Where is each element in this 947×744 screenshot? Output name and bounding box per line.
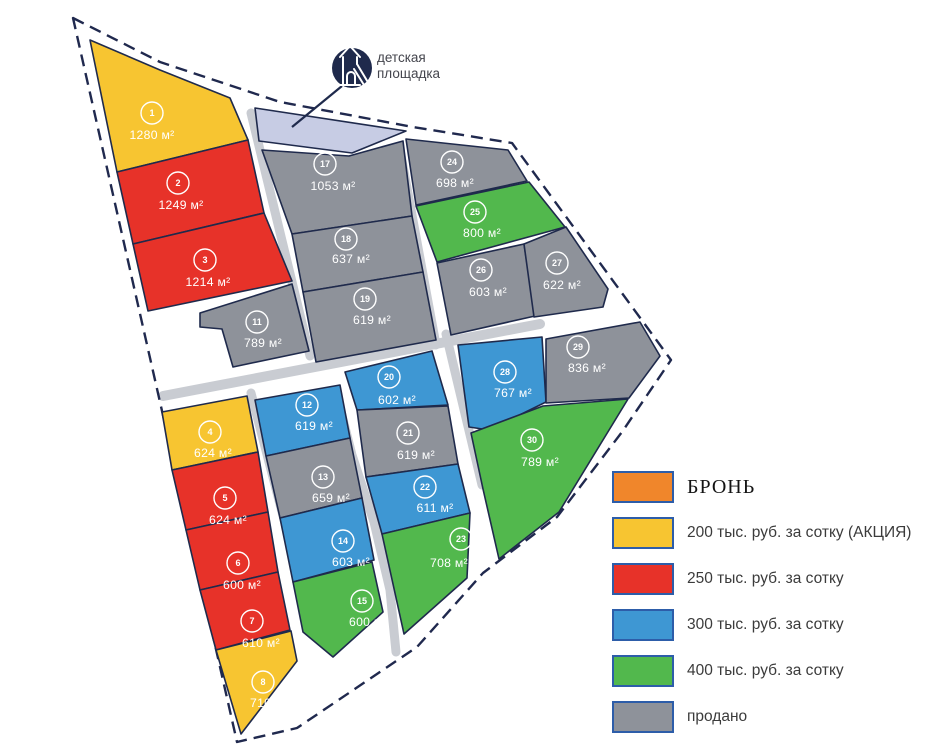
plot-area: 789 м² [521,455,559,469]
plot-number: 5 [222,493,227,503]
plot-number: 28 [500,367,510,377]
legend-swatch-reserved [612,471,674,503]
plot-number: 23 [456,534,466,544]
plot-number: 3 [202,255,207,265]
plot-number: 2 [175,178,180,188]
legend-label: БРОНЬ [687,476,755,499]
plot-number: 25 [470,207,480,217]
plot-number: 14 [338,536,348,546]
plot-area: 1053 м² [310,179,355,193]
plot-area: 659 м² [312,491,350,505]
legend-item-price300: 300 тыс. руб. за сотку [612,610,911,640]
plot-area: 600 м² [223,578,261,592]
legend-swatch-price250 [612,563,674,595]
plot-area: 698 м² [436,176,474,190]
plot-number: 21 [403,428,413,438]
plot-area: 610 м² [242,636,280,650]
legend-label: продано [687,708,747,726]
plot-number: 11 [252,317,262,327]
plot-number: 6 [235,558,240,568]
plot-number: 15 [357,596,367,606]
plot-area: 1249 м² [158,198,203,212]
plot-area: 619 м² [397,448,435,462]
plot-area: 602 м² [378,393,416,407]
legend-swatch-sold [612,701,674,733]
land-plot-scheme: 11280 м²21249 м²31214 м²4624 м²5624 м²66… [0,0,947,744]
plot-area: 603 м² [332,555,370,569]
plot-27[interactable] [524,227,608,317]
legend-label: 400 тыс. руб. за сотку [687,662,844,680]
plot-area: 800 м² [463,226,501,240]
plot-area: 624 м² [209,513,247,527]
plot-area: 611 м² [416,501,453,515]
plots-layer [90,40,660,734]
plot-area: 619 м² [295,419,333,433]
legend-item-reserved: БРОНЬ [612,472,911,502]
legend-label: 250 тыс. руб. за сотку [687,570,844,588]
plot-area: 603 м² [469,285,507,299]
legend-item-sold: продано [612,702,911,732]
legend-label: 300 тыс. руб. за сотку [687,616,844,634]
plot-number: 18 [341,234,351,244]
plot-number: 13 [318,472,328,482]
legend-swatch-price300 [612,609,674,641]
plot-number: 30 [527,435,537,445]
legend-swatch-price400 [612,655,674,687]
plot-number: 8 [260,677,265,687]
playground-marker: детскаяплощадка [292,46,441,127]
plot-area: 624 м² [194,446,232,460]
plot-number: 19 [360,294,370,304]
plot-number: 17 [320,159,330,169]
plot-area: 619 м² [353,313,391,327]
plot-number: 27 [552,258,562,268]
plot-number: 1 [149,108,154,118]
legend: БРОНЬ200 тыс. руб. за сотку (АКЦИЯ)250 т… [612,472,911,732]
plot-number: 26 [476,265,486,275]
plot-number: 12 [302,400,312,410]
plot-area: 600 м² [349,615,387,629]
plot-area: 767 м² [494,386,532,400]
plot-area: 637 м² [332,252,370,266]
legend-item-promo200: 200 тыс. руб. за сотку (АКЦИЯ) [612,518,911,548]
plot-number: 4 [207,427,212,437]
playground-label-line2: площадка [377,66,441,81]
plot-number: 20 [384,372,394,382]
plot-area: 708 м² [430,556,468,570]
plot-area: 1214 м² [185,275,230,289]
playground-icon [332,48,372,88]
plot-number: 29 [573,342,583,352]
plot-area: 622 м² [543,278,581,292]
legend-label: 200 тыс. руб. за сотку (АКЦИЯ) [687,524,911,542]
plot-area: 836 м² [568,361,606,375]
plot-number: 22 [420,482,430,492]
playground-label-line1: детская [377,50,426,65]
legend-item-price250: 250 тыс. руб. за сотку [612,564,911,594]
legend-swatch-promo200 [612,517,674,549]
plot-area: 789 м² [244,336,282,350]
plot-area: 1280 м² [129,128,174,142]
plot-area: 710 м² [250,696,288,710]
plot-number: 24 [447,157,457,167]
legend-item-price400: 400 тыс. руб. за сотку [612,656,911,686]
plot-number: 7 [249,616,254,626]
